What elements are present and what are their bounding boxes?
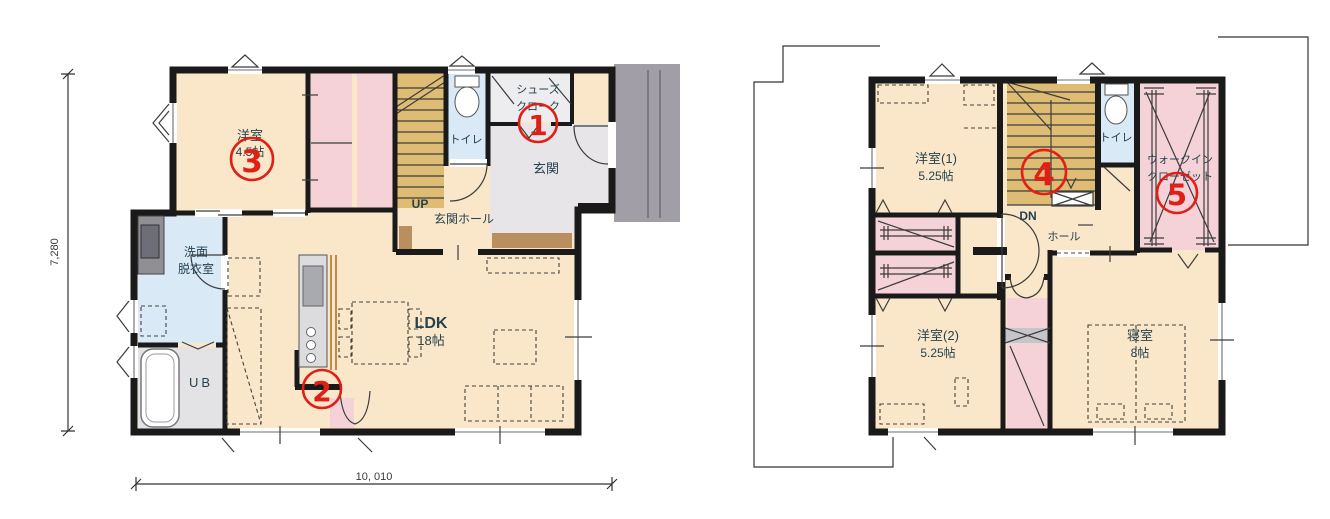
burner bbox=[307, 354, 316, 363]
room-label-bedroom: 寝室 bbox=[1127, 328, 1153, 343]
stairs-down-label: DN bbox=[1019, 209, 1036, 223]
room-label-youshitsu1: 洋室(1) bbox=[915, 151, 957, 166]
burner bbox=[307, 341, 316, 350]
dimension-horizontal: 10, 010 bbox=[356, 471, 393, 483]
room-label-unit-bath: UB bbox=[189, 375, 213, 390]
room-size-bedroom: 8帖 bbox=[1131, 345, 1150, 360]
room-size-ldk: 18帖 bbox=[417, 333, 444, 348]
floor2-room-fills bbox=[872, 80, 1222, 432]
genkan-step bbox=[492, 233, 572, 248]
room-label-genkan: 玄関 bbox=[533, 161, 559, 176]
room-size-youshitsu2: 5.25帖 bbox=[920, 345, 955, 360]
room-label-wic-1: ウォークイン bbox=[1147, 153, 1213, 166]
porch-floor bbox=[614, 64, 680, 222]
floorplan-drawing: 洋室 4.5帖 トイレ シューズ クローク 玄関 玄関ホール UP 洗面 脱衣室… bbox=[0, 0, 1330, 519]
svg-text:3: 3 bbox=[241, 144, 263, 180]
room-label-toilet-2f: トイレ bbox=[1100, 132, 1133, 144]
room-size-youshitsu1: 5.25帖 bbox=[918, 168, 953, 183]
toilet-tank-2f bbox=[1105, 84, 1128, 95]
closet-1f-b bbox=[357, 73, 393, 208]
room-label-ldk: LDK bbox=[415, 315, 448, 332]
window-triangle-icon bbox=[117, 301, 129, 332]
room-label-hall: ホール bbox=[1048, 230, 1081, 243]
room-label-genkan-hall: 玄関ホール bbox=[434, 211, 494, 226]
kitchen-sink bbox=[303, 266, 323, 306]
room-genkan-tile2 bbox=[490, 208, 575, 234]
toilet-tank bbox=[455, 76, 479, 87]
window-triangle-icon bbox=[117, 347, 129, 377]
stairs-up-label: UP bbox=[412, 197, 429, 211]
washbasin-sink bbox=[141, 225, 159, 258]
toilet-bowl-2f bbox=[1105, 96, 1127, 124]
floor1-plan: 洋室 4.5帖 トイレ シューズ クローク 玄関 玄関ホール UP 洗面 脱衣室… bbox=[117, 55, 680, 452]
stairs-1f-floor bbox=[397, 73, 444, 208]
closet-2f-mid-upper bbox=[1007, 298, 1048, 328]
toilet-bowl bbox=[455, 87, 479, 117]
room-label-toilet-1f: トイレ bbox=[450, 134, 483, 146]
vent-icon bbox=[232, 55, 258, 67]
svg-text:2: 2 bbox=[312, 375, 331, 408]
floor2-plan: 洋室(1) 5.25帖 洋室(2) 5.25帖 寝室 8帖 トイレ ホール DN… bbox=[754, 37, 1308, 467]
vent-icon bbox=[1080, 63, 1104, 74]
burner bbox=[307, 328, 316, 337]
dimension-vertical: 7,280 bbox=[49, 238, 61, 266]
room-label-senmen-1: 洗面 bbox=[184, 245, 208, 259]
room-label-senmen-2: 脱衣室 bbox=[178, 261, 214, 276]
closet-1f-a bbox=[311, 73, 352, 208]
vent-icon bbox=[930, 64, 954, 76]
hall-step-edge bbox=[399, 226, 412, 252]
floorplan-page: 洋室 4.5帖 トイレ シューズ クローク 玄関 玄関ホール UP 洗面 脱衣室… bbox=[0, 0, 1330, 519]
room-label-shoes-closet-1: シューズ bbox=[516, 82, 559, 96]
svg-text:1: 1 bbox=[528, 109, 547, 142]
floor1-room-fills bbox=[134, 64, 680, 432]
window-triangle-icon bbox=[153, 104, 169, 142]
vent-icon bbox=[450, 56, 474, 66]
room-label-youshitsu2: 洋室(2) bbox=[917, 328, 959, 343]
svg-text:5: 5 bbox=[1167, 178, 1187, 212]
svg-text:4: 4 bbox=[1033, 157, 1055, 193]
